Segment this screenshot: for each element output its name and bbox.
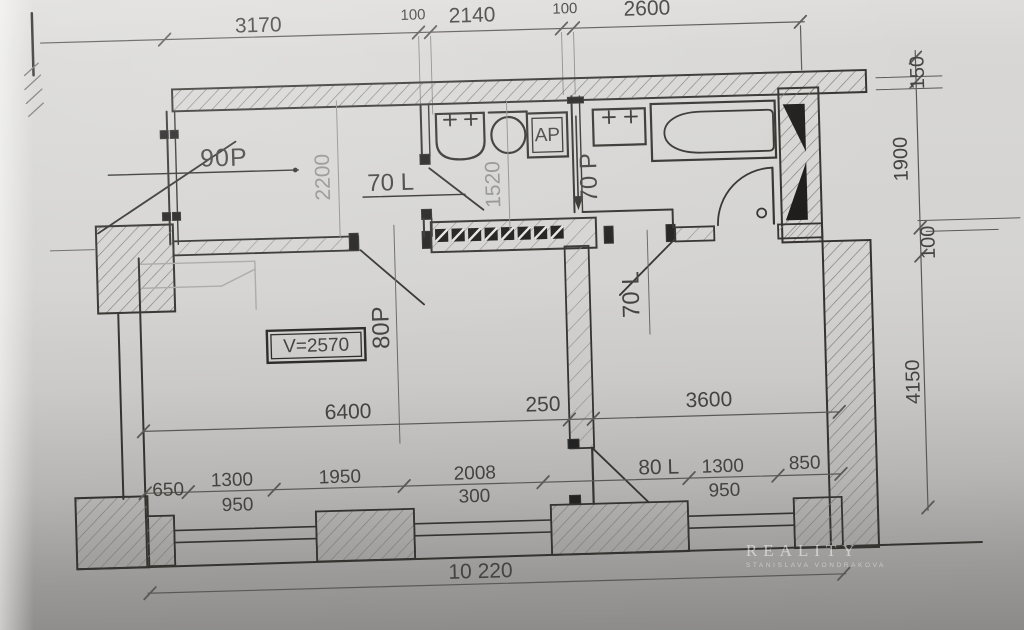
floorplan-photo: 3170 100 2140 100 2600 [0, 0, 1024, 630]
photo-sheen [0, 0, 1024, 630]
